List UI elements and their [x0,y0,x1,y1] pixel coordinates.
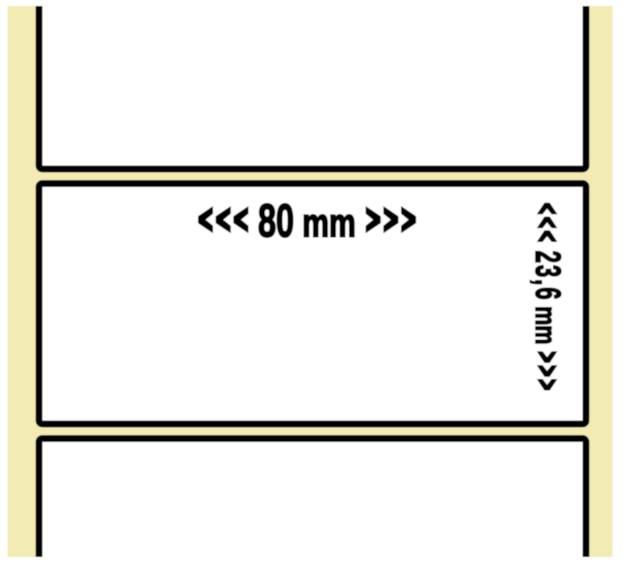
svg-text:mm: mm [302,201,356,245]
svg-text:mm: mm [529,306,561,344]
svg-text:23,6: 23,6 [528,251,567,300]
svg-text:80: 80 [258,196,294,247]
